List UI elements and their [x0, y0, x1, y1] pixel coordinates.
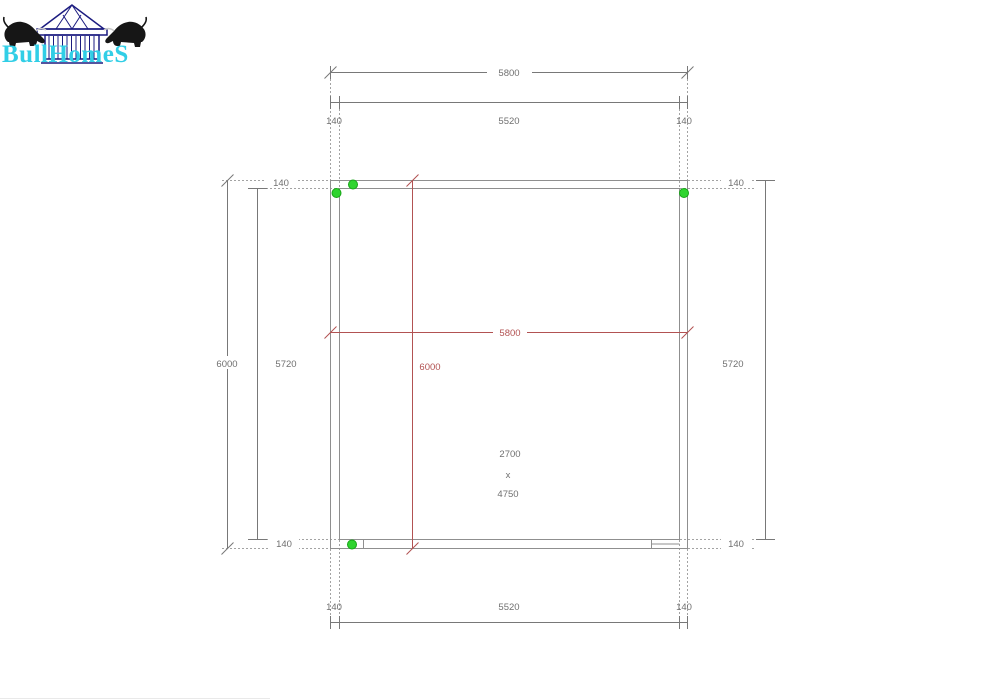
- dim-right-top-wall: 140: [728, 178, 744, 189]
- dim-top-left-wall: 140: [326, 116, 342, 127]
- drawing-page: BullHomeS: [0, 0, 989, 699]
- floor-plan-drawing: 5800 140 5520 140 6000 5720 140 140 5720…: [0, 0, 989, 699]
- room-length: 4750: [497, 489, 518, 500]
- dimension-labels: 5800 140 5520 140 6000 5720 140 140 5720…: [216, 68, 744, 613]
- dim-right-inner: 5720: [722, 359, 743, 370]
- dim-interior-height: 6000: [419, 362, 440, 373]
- room-separator: x: [506, 470, 511, 481]
- label-backgrounds: [211, 66, 751, 549]
- dim-bottom-right-wall: 140: [676, 602, 692, 613]
- dim-left-overall: 6000: [216, 359, 237, 370]
- extension-lines: [222, 79, 773, 617]
- room-size-annotation: 2700 x 4750: [497, 449, 520, 500]
- bullhomes-logo: BullHomeS: [0, 2, 160, 68]
- dim-left-bottom-wall: 140: [276, 539, 292, 550]
- dim-right-bottom-wall: 140: [728, 539, 744, 550]
- dim-top-inner: 5520: [498, 116, 519, 127]
- marker-top-left-wall: [349, 180, 358, 189]
- dim-top-overall: 5800: [498, 68, 519, 79]
- dim-interior-width: 5800: [499, 328, 520, 339]
- marker-bottom-left: [348, 540, 357, 549]
- dim-top-right-wall: 140: [676, 116, 692, 127]
- bottom-wall-dividers: [364, 540, 680, 549]
- dim-left-top-wall: 140: [273, 178, 289, 189]
- dim-bottom-left-wall: 140: [326, 602, 342, 613]
- room-width: 2700: [499, 449, 520, 460]
- marker-top-right: [680, 189, 689, 198]
- dim-left-inner: 5720: [275, 359, 296, 370]
- brand-name: BullHomeS: [2, 41, 129, 68]
- marker-top-left-inner: [332, 189, 341, 198]
- dim-bottom-inner: 5520: [498, 602, 519, 613]
- gray-dimension-lines: [222, 66, 776, 629]
- interior-dimension-labels: 5800 6000: [419, 328, 520, 373]
